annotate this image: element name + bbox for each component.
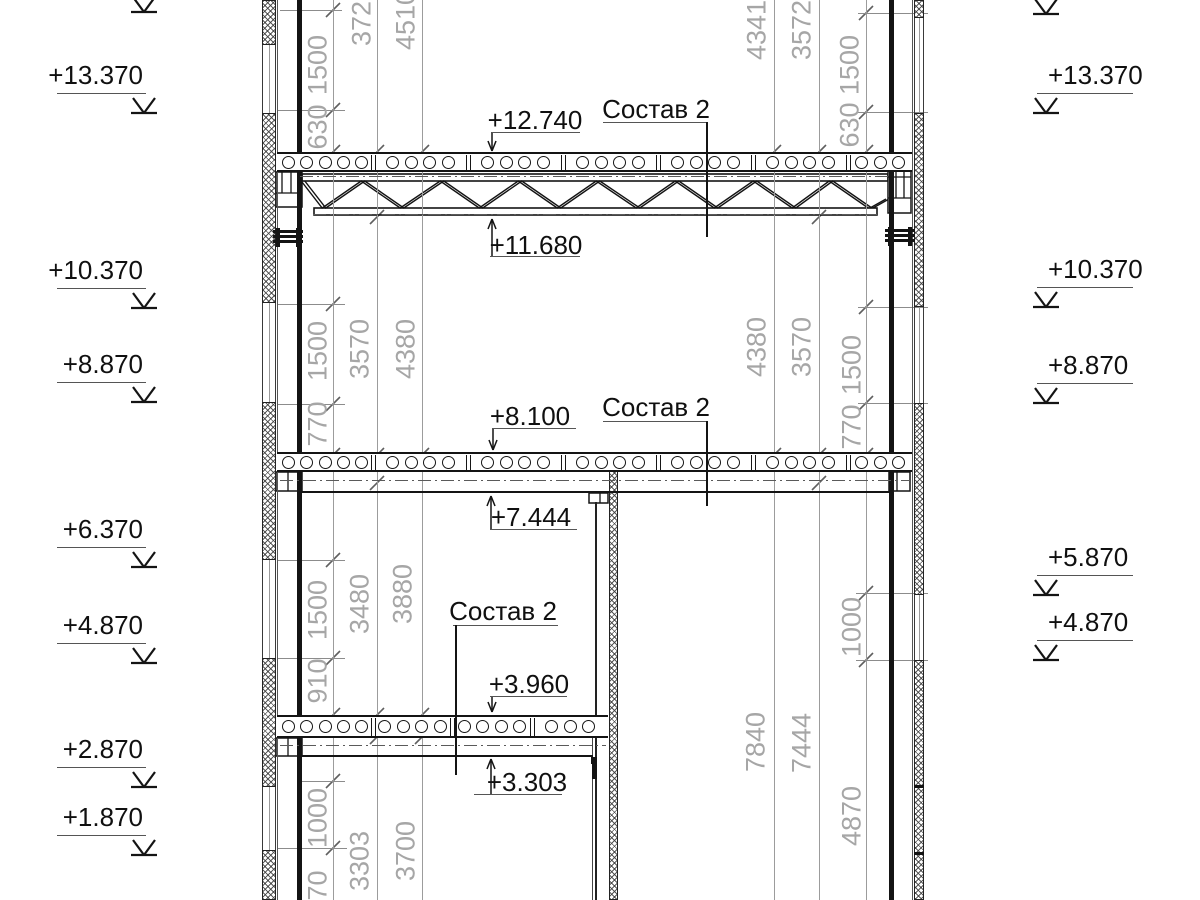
dimension-chain-line (422, 0, 423, 900)
dimension-text: 770 (837, 404, 868, 449)
elevation-label: +10.370 (40, 256, 143, 284)
right-wall-panel-hatch (914, 0, 924, 18)
dimension-text: 7840 (741, 712, 772, 772)
elevation-label: +13.370 (40, 61, 143, 89)
composition-leader (706, 421, 708, 506)
slab-void-circle (319, 456, 332, 469)
right-wall-window-line (919, 307, 920, 403)
slab-void-circle (282, 456, 295, 469)
dimension-text: 1500 (837, 335, 868, 395)
slab-void-circle (495, 720, 508, 733)
slab-void-circle (690, 156, 703, 169)
left-wall-window-line (275, 560, 276, 658)
slab-void-circle (405, 156, 418, 169)
dimension-chain-line (774, 0, 775, 900)
composition-rule (603, 421, 706, 422)
bolt-bracket-bolt (885, 239, 915, 242)
slab-void-circle (518, 156, 531, 169)
slab-void-circle (481, 156, 494, 169)
slab-void-circle (671, 456, 684, 469)
ceiling-line (300, 755, 593, 757)
slab-void-circle (708, 456, 721, 469)
extension-line (300, 781, 345, 782)
slab-void-circle (434, 720, 447, 733)
slab-void-circle (355, 156, 368, 169)
bolt-bracket-bolt (273, 230, 303, 233)
left-wall-panel-hatch (262, 850, 276, 900)
slab-void-circle (803, 156, 816, 169)
dimension-text: 1000 (303, 788, 334, 848)
slab-void-circle (545, 720, 558, 733)
left-wall-window-line (262, 787, 263, 850)
composition-rule (453, 625, 558, 626)
slab-void-circle (423, 456, 436, 469)
slab-void-circle (458, 720, 471, 733)
dimension-text: 3570 (345, 319, 376, 379)
elevation-label: +1.870 (40, 803, 143, 831)
right-wall-window-line (923, 595, 924, 660)
slab-void-circle (500, 456, 513, 469)
slab-void-circle (632, 156, 645, 169)
dimension-text: 770 (303, 401, 334, 446)
left-wall-window-line (269, 303, 270, 402)
slab-void-circle (576, 156, 589, 169)
centerline-dashdot (280, 745, 606, 746)
slab-void-circle (803, 456, 816, 469)
slab-void-circle (727, 156, 740, 169)
level-annotation-rule (492, 132, 580, 133)
bolt-bracket-bolt (273, 235, 303, 238)
centerline-dashdot (313, 214, 877, 215)
slab-plank-joint (450, 718, 455, 737)
slab-void-circle (397, 720, 410, 733)
level-annotation-rule (474, 794, 562, 795)
slab-void-circle (386, 456, 399, 469)
right-wall-panel-joint (914, 785, 924, 788)
elevation-underline (57, 547, 146, 548)
dimension-text: 3720 (347, 0, 378, 46)
slab-plank-joint (751, 155, 756, 171)
right-wall-panel-hatch (914, 660, 924, 900)
left-wall-window-line (275, 303, 276, 402)
elevation-underline (1037, 287, 1133, 288)
drawing-canvas: 1500630372045101500770357043801500910348… (0, 0, 1200, 900)
slab-void-circle (500, 156, 513, 169)
dimension-chain-line (819, 0, 820, 900)
slab-void-circle (613, 456, 626, 469)
dimension-text: 970 (303, 870, 334, 900)
left-wall-window-line (269, 45, 270, 113)
slab-void-circle (892, 456, 905, 469)
slab-void-circle (282, 156, 295, 169)
extension-line (280, 10, 342, 11)
dimension-text: 1500 (303, 321, 334, 381)
elevation-underline (57, 288, 146, 289)
level-annotation-text: +3.960 (489, 670, 569, 698)
left-wall-window-line (262, 560, 263, 658)
right-wall-window-line (914, 595, 915, 660)
elevation-label: +2.870 (40, 735, 143, 763)
slab-plank-joint (561, 155, 566, 171)
slab-plank-joint (561, 455, 566, 471)
slab-void-circle (855, 456, 868, 469)
left-wall-window-line (275, 787, 276, 850)
slab-void-circle (481, 456, 494, 469)
dimension-text: 7444 (787, 713, 818, 773)
slab-void-circle (874, 156, 887, 169)
ceiling-end-tick (591, 755, 593, 764)
slab-void-circle (405, 456, 418, 469)
ceiling-line (300, 491, 889, 493)
slab-void-circle (442, 456, 455, 469)
dimension-chain-line (377, 0, 378, 900)
composition-label: Состав 2 (602, 393, 710, 421)
level-annotation-text: +11.680 (490, 231, 583, 259)
slab-void-circle (785, 456, 798, 469)
slab-void-circle (576, 456, 589, 469)
left-wall-column-line (297, 0, 302, 900)
ceiling-end-tick (300, 755, 302, 764)
right-wall-panel-hatch (914, 403, 924, 595)
slab-void-circle (874, 456, 887, 469)
slab-void-circle (337, 456, 350, 469)
elevation-underline (1037, 640, 1133, 641)
composition-leader (706, 122, 708, 237)
composition-leader (455, 625, 457, 775)
slab-plank-joint (530, 718, 535, 737)
slab-void-circle (537, 156, 550, 169)
dimension-text: 630 (835, 102, 866, 147)
right-wall-face-line (912, 0, 913, 900)
dimension-text: 3572 (787, 0, 818, 60)
elevation-underline (57, 835, 146, 836)
dimension-text: 1500 (303, 580, 334, 640)
level-annotation-text: +3.303 (487, 768, 567, 796)
slab-void-circle (822, 156, 835, 169)
extension-line (278, 848, 347, 849)
bolt-bracket-bolt (273, 240, 303, 243)
slab-void-circle (671, 156, 684, 169)
right-wall-panel-joint (914, 852, 924, 855)
elevation-underline (1037, 383, 1133, 384)
dimension-chain-line (866, 0, 867, 900)
slab-void-circle (892, 156, 905, 169)
slab-void-circle (564, 720, 577, 733)
centerline-dashdot (300, 176, 888, 177)
bolt-bracket-bolt (885, 229, 915, 232)
dimension-text: 3570 (787, 317, 818, 377)
right-wall-window-line (923, 18, 924, 113)
ceiling-end-tick (300, 491, 302, 500)
linework-layer (0, 0, 1200, 900)
slab-plank-joint (656, 155, 661, 171)
slab-plank-joint (656, 455, 661, 471)
elevation-underline (57, 93, 146, 94)
slab-void-circle (300, 156, 313, 169)
slab-void-circle (518, 456, 531, 469)
elevation-label: +10.370 (1048, 255, 1158, 283)
centerline-dashdot (280, 480, 910, 481)
dimension-text: 4380 (742, 317, 773, 377)
elevation-label: +8.870 (40, 350, 143, 378)
dimension-text: 1500 (303, 35, 334, 95)
composition-rule (603, 122, 706, 123)
slab-void-circle (727, 456, 740, 469)
slab-void-circle (582, 720, 595, 733)
slab-void-circle (355, 456, 368, 469)
level-annotation-text: +12.740 (488, 106, 583, 134)
slab-void-circle (282, 720, 295, 733)
slab-void-circle (766, 156, 779, 169)
slab-void-circle (319, 156, 332, 169)
dimension-text: 1500 (835, 35, 866, 95)
slab-void-circle (855, 156, 868, 169)
left-wall-panel-hatch (262, 113, 276, 303)
composition-label: Состав 2 (449, 597, 557, 625)
slab-void-circle (595, 156, 608, 169)
slab-void-circle (386, 156, 399, 169)
dimension-text: 3880 (388, 564, 419, 624)
slab-plank-joint (371, 155, 376, 171)
elevation-underline (1037, 575, 1133, 576)
dimension-text: 910 (303, 658, 334, 703)
slab-void-circle (632, 456, 645, 469)
elevation-underline (57, 643, 146, 644)
slab-void-circle (708, 156, 721, 169)
left-wall-face-line (277, 0, 278, 900)
elevation-underline (57, 382, 146, 383)
elevation-underline (57, 767, 146, 768)
elevation-label: +13.370 (1048, 61, 1158, 89)
slab-void-circle (766, 456, 779, 469)
extension-line (278, 560, 345, 561)
slab-void-circle (595, 456, 608, 469)
slab-void-circle (300, 720, 313, 733)
level-annotation-text: +7.444 (491, 503, 571, 531)
right-wall-window-line (914, 307, 915, 403)
interior-wall-hatch (609, 470, 618, 900)
slab-plank-joint (466, 155, 471, 171)
left-wall-window-line (269, 787, 270, 850)
slab-plank-joint (846, 455, 851, 471)
left-wall-window-line (275, 45, 276, 113)
left-wall-window-line (269, 560, 270, 658)
right-wall-column-line (889, 0, 894, 900)
level-annotation-text: +8.100 (490, 402, 570, 430)
left-wall-panel-hatch (262, 402, 276, 560)
slab-void-circle (319, 720, 332, 733)
dimension-text: 3480 (345, 574, 376, 634)
slab-plank-joint (751, 455, 756, 471)
dimension-text: 1000 (837, 597, 868, 657)
right-wall-panel-hatch (914, 113, 924, 307)
elevation-label: +8.870 (1048, 351, 1158, 379)
right-wall-window-line (919, 595, 920, 660)
slab-void-circle (785, 156, 798, 169)
elevation-label: +5.870 (1048, 543, 1158, 571)
level-annotation-rule (490, 696, 567, 697)
slab-void-circle (537, 456, 550, 469)
slab-void-circle (822, 456, 835, 469)
dimension-text: 3303 (345, 831, 376, 891)
dimension-text: 4380 (391, 319, 422, 379)
left-wall-panel-hatch (262, 0, 276, 45)
slab-void-circle (337, 720, 350, 733)
bolt-bracket-bolt (885, 234, 915, 237)
slab-void-circle (423, 156, 436, 169)
level-annotation-rule (492, 428, 576, 429)
left-wall-window-line (262, 303, 263, 402)
elevation-label: +4.870 (1048, 608, 1158, 636)
dimension-text: 3700 (391, 821, 422, 881)
right-wall-window-line (914, 18, 915, 113)
dimension-text: 4341 (742, 0, 773, 60)
left-wall-panel-hatch (262, 658, 276, 787)
slab-void-circle (442, 156, 455, 169)
right-wall-window-line (923, 307, 924, 403)
dimension-text: 4510 (391, 0, 422, 50)
composition-label: Состав 2 (602, 95, 710, 123)
elevation-label: +6.370 (40, 515, 143, 543)
slab-void-circle (513, 720, 526, 733)
left-wall-window-line (262, 45, 263, 113)
interior-wall-line (595, 502, 597, 900)
slab-void-circle (613, 156, 626, 169)
slab-void-circle (337, 156, 350, 169)
slab-void-circle (690, 456, 703, 469)
elevation-underline (1037, 93, 1133, 94)
right-wall-window-line (919, 18, 920, 113)
slab-plank-joint (846, 155, 851, 171)
level-annotation-rule (490, 256, 580, 257)
slab-plank-joint (371, 455, 376, 471)
slab-plank-joint (371, 718, 376, 737)
elevation-label: +4.870 (40, 611, 143, 639)
level-annotation-rule (490, 529, 577, 530)
extension-line (278, 304, 345, 305)
slab-plank-joint (466, 455, 471, 471)
dimension-text: 630 (303, 104, 334, 149)
dimension-text: 4870 (837, 786, 868, 846)
slab-void-circle (300, 456, 313, 469)
